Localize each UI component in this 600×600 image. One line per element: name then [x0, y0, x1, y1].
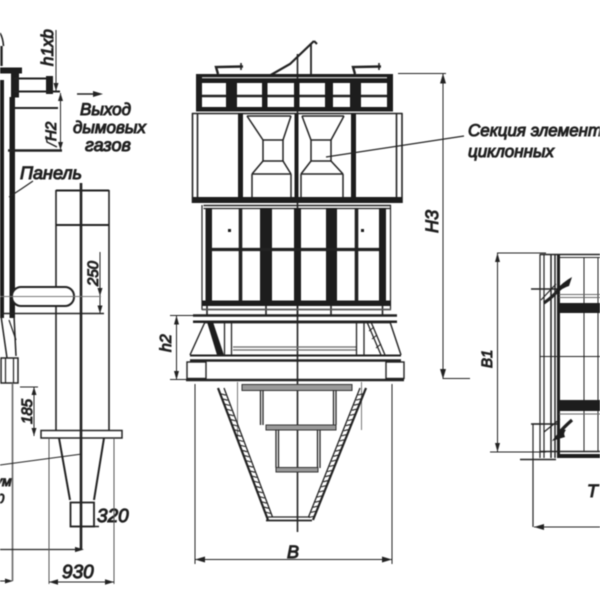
- svg-text:Н2: Н2: [43, 121, 60, 141]
- svg-text:Секция элементов: Секция элементов: [468, 121, 600, 140]
- svg-text:Панель: Панель: [20, 163, 82, 183]
- svg-text:320: 320: [97, 506, 129, 527]
- svg-text:В1: В1: [479, 350, 496, 368]
- svg-text:В: В: [287, 542, 299, 562]
- svg-text:ум: ум: [0, 473, 12, 489]
- svg-text:h2: h2: [158, 334, 175, 352]
- svg-text:h1xb: h1xb: [38, 29, 57, 66]
- svg-text:930: 930: [62, 562, 94, 583]
- svg-text:250: 250: [85, 260, 102, 287]
- svg-text:Н3: Н3: [422, 210, 442, 233]
- svg-text:Выход: Выход: [80, 100, 131, 119]
- svg-text:185: 185: [19, 398, 36, 424]
- svg-text:циклонных: циклонных: [468, 142, 554, 161]
- svg-text:газов: газов: [85, 135, 131, 155]
